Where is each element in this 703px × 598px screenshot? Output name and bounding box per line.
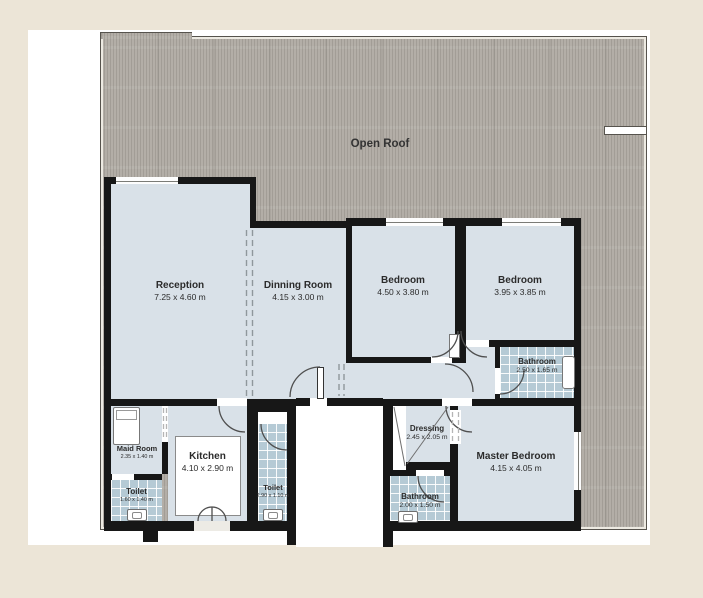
room-label-toilet-service: Toilet 2.90 x 1.10 m: [256, 483, 290, 500]
room-name: Bedroom: [344, 274, 462, 287]
room-dims: 4.15 x 4.05 m: [458, 463, 574, 474]
room-name: Maid Room: [110, 444, 164, 454]
page-background: Open Roof Reception 7.25 x 4.60 m Dinnin…: [0, 0, 703, 598]
door-opening: [162, 406, 168, 442]
corridor: [346, 363, 495, 399]
toilet-fixture-seat: [403, 514, 413, 521]
room-dinning: [250, 228, 346, 399]
room-name: Bedroom: [461, 274, 579, 287]
door-opening: [310, 398, 327, 406]
room-label-master-bedroom: Master Bedroom 4.15 x 4.05 m: [458, 450, 574, 474]
wall: [489, 340, 574, 347]
toilet-fixture-seat: [268, 512, 278, 519]
room-label-kitchen: Kitchen 4.10 x 2.90 m: [168, 450, 247, 474]
room-name: Master Bedroom: [458, 450, 574, 463]
door-opening: [416, 470, 444, 476]
room-dims: 4.10 x 2.90 m: [168, 463, 247, 474]
toilet-fixture: [263, 509, 283, 521]
pillow: [116, 410, 137, 420]
room-name: Dressing: [398, 424, 456, 434]
wall: [104, 398, 217, 406]
room-dims: 3.95 x 3.85 m: [461, 287, 579, 298]
window: [574, 432, 581, 490]
door-opening: [194, 521, 230, 531]
door-opening: [466, 340, 489, 347]
room-label-toilet-maid: Toilet 1.60 x 1.40 m: [111, 487, 162, 504]
wall: [327, 398, 383, 406]
door-opening: [112, 474, 134, 480]
room-label-bathroom-2: Bathroom 2.00 x 1.50 m: [390, 492, 450, 511]
room-name: Toilet: [111, 487, 162, 497]
room-dims: 7.25 x 4.60 m: [120, 292, 240, 303]
door-leaf: [317, 367, 324, 399]
door-opening: [217, 398, 247, 406]
toilet-fixture: [398, 511, 418, 523]
wall: [143, 531, 158, 542]
room-label-dinning: Dinning Room 4.15 x 3.00 m: [246, 279, 350, 303]
room-dims: 4.50 x 3.80 m: [344, 287, 462, 298]
room-name: Reception: [120, 279, 240, 292]
room-name: Bathroom: [500, 357, 574, 367]
room-label-reception: Reception 7.25 x 4.60 m: [120, 279, 240, 303]
door-opening: [442, 398, 472, 406]
door-opening: [258, 412, 287, 424]
open-roof-label: Open Roof: [330, 137, 430, 152]
wall: [296, 398, 310, 406]
corridor: [466, 347, 495, 363]
room-dims: 2.00 x 1.50 m: [390, 502, 450, 511]
room-name: Bathroom: [390, 492, 450, 502]
wall: [398, 462, 452, 470]
toilet-fixture-seat: [132, 512, 142, 519]
room-label-bathroom-1: Bathroom 2.50 x 1.65 m: [500, 357, 574, 376]
room-name: Dinning Room: [246, 279, 350, 292]
window: [386, 218, 443, 226]
toilet-fixture: [127, 509, 147, 521]
room-name: Kitchen: [168, 450, 247, 463]
window: [116, 177, 178, 184]
room-dims: 2.45 x 2.05 m: [398, 434, 456, 443]
room-dims: 1.60 x 1.40 m: [111, 497, 162, 504]
room-label-maid-room: Maid Room 2.35 x 1.40 m: [110, 444, 164, 461]
kitchen-counter: [175, 436, 241, 516]
room-label-dressing: Dressing 2.45 x 2.05 m: [398, 424, 456, 443]
window: [502, 218, 561, 226]
wall: [245, 221, 352, 228]
wall: [472, 398, 581, 406]
wall: [393, 398, 442, 406]
door-leaf: [449, 334, 460, 358]
room-name: Toilet: [256, 483, 290, 493]
room-dims: 4.15 x 3.00 m: [246, 292, 350, 303]
room-toilet-service: [258, 424, 287, 521]
bed: [113, 407, 140, 445]
room-label-bedroom-2: Bedroom 3.95 x 3.85 m: [461, 274, 579, 298]
room-dims: 2.90 x 1.10 m: [256, 493, 290, 500]
room-label-bedroom-1: Bedroom 4.50 x 3.80 m: [344, 274, 462, 298]
room-dims: 2.50 x 1.65 m: [500, 367, 574, 376]
roof-edge-step: [100, 32, 192, 39]
room-dims: 2.35 x 1.40 m: [110, 454, 164, 461]
roof-edge-notch: [604, 126, 646, 135]
stair-void: [296, 398, 383, 547]
wall: [247, 398, 258, 531]
